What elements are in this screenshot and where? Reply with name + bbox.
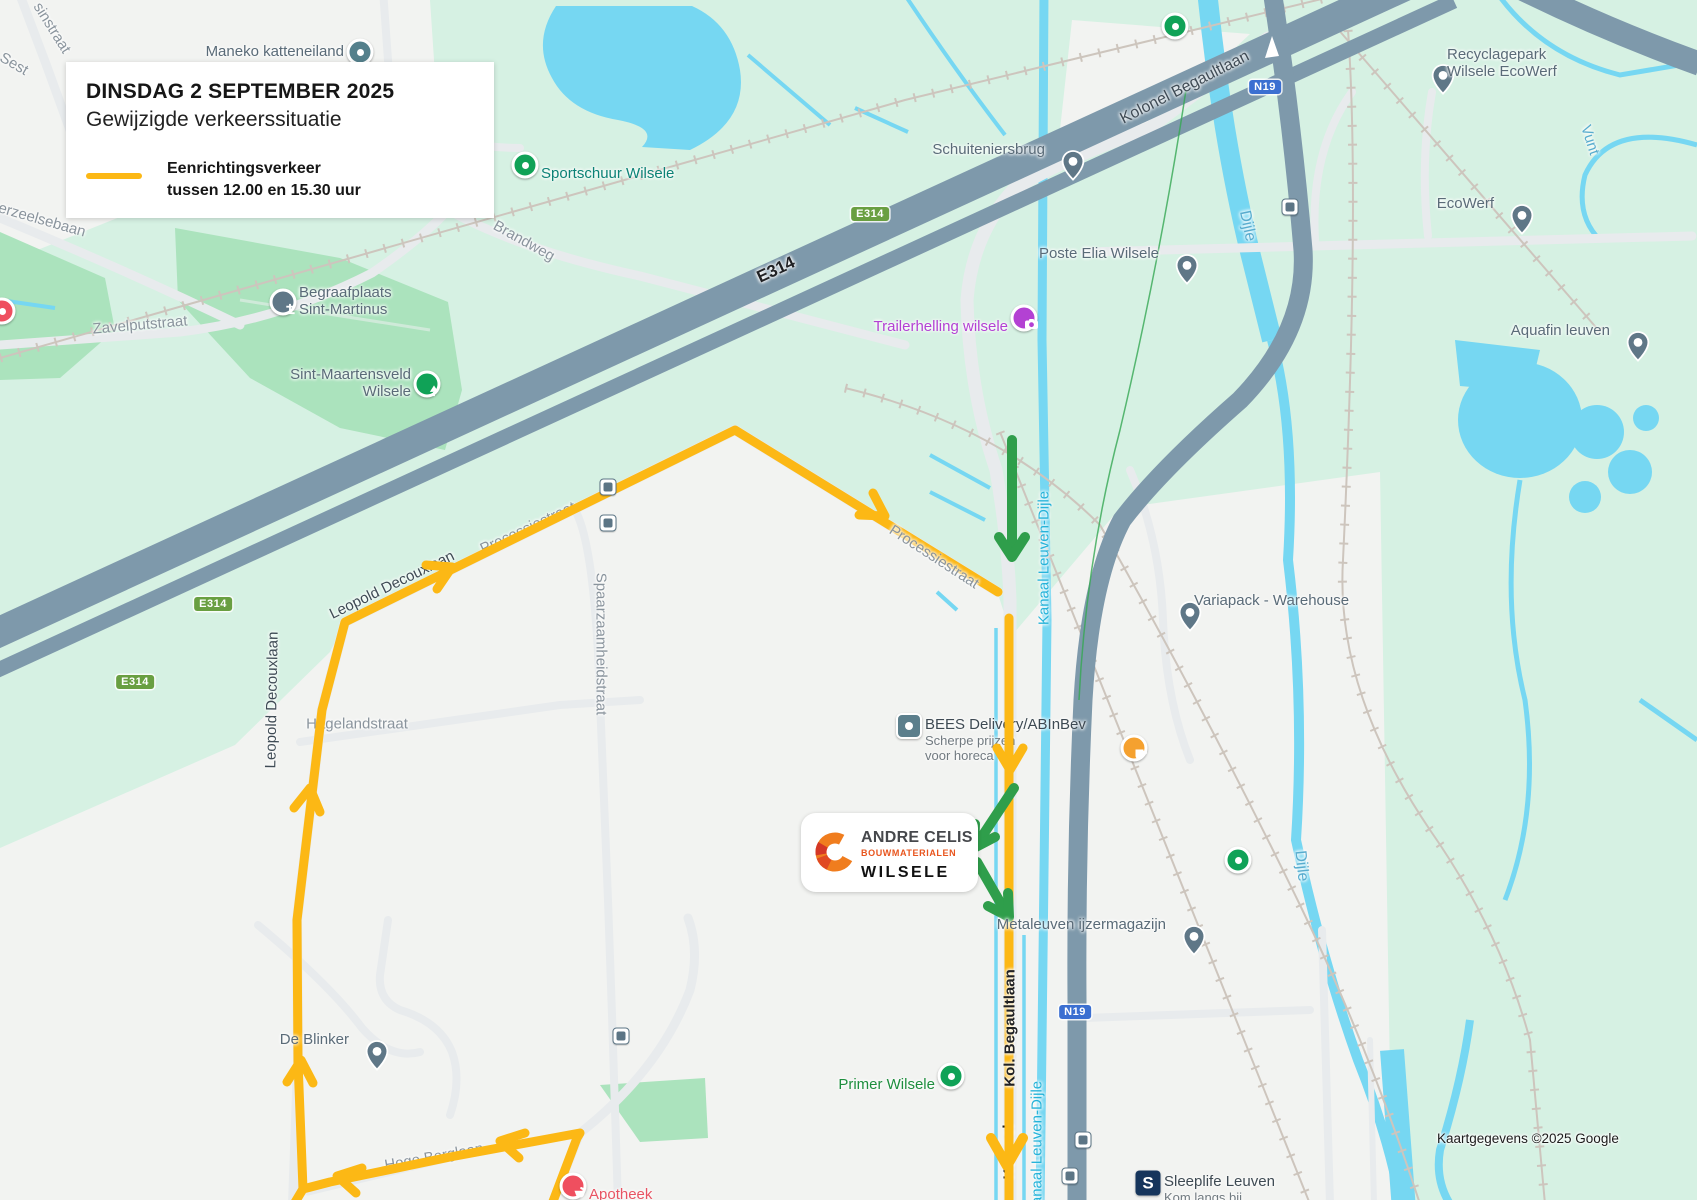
poi-label: Poste Elia Wilsele bbox=[1039, 245, 1159, 262]
poi-label: Primer Wilsele bbox=[838, 1076, 935, 1093]
poi-label: EcoWerf bbox=[1437, 195, 1494, 212]
map-canvas[interactable]: sinstraatSesterzeelsebaanZavelputstraatB… bbox=[0, 0, 1697, 1200]
poi-label: Variapack - Warehouse bbox=[1194, 592, 1349, 609]
brand-name: ANDRE CELIS bbox=[861, 829, 973, 847]
coffee-cup-icon bbox=[1121, 735, 1148, 762]
cemetery-icon bbox=[270, 289, 297, 316]
traffic-info-box: DINSDAG 2 SEPTEMBER 2025 Gewijzigde verk… bbox=[66, 62, 494, 218]
poi-label: RecyclageparkWilsele EcoWerf bbox=[1447, 46, 1557, 80]
circle-marker-icon bbox=[938, 1063, 965, 1090]
poi-label: Metaleuven ijzermagazijn bbox=[997, 916, 1166, 933]
map-pin-icon bbox=[1626, 331, 1650, 362]
poi-label: Sint-MaartensveldWilsele bbox=[290, 366, 411, 400]
map-pin-icon bbox=[1061, 150, 1085, 181]
map-attribution: Kaartgegevens ©2025 Google bbox=[1437, 1131, 1619, 1146]
info-subtitle: Gewijzigde verkeerssituatie bbox=[86, 108, 342, 132]
poi-label: Sleeplife LeuvenKom langs bijSleeplife O bbox=[1164, 1173, 1275, 1200]
sleeplife-s-icon: S bbox=[1136, 1171, 1161, 1196]
map-pin-icon bbox=[1510, 204, 1534, 235]
poi-label: Sportschuur Wilsele bbox=[541, 165, 674, 182]
legend-label: Eenrichtingsverkeer tussen 12.00 en 15.3… bbox=[167, 158, 361, 202]
legend-line-swatch bbox=[86, 173, 142, 179]
circle-marker-icon bbox=[1162, 13, 1189, 40]
map-pin-icon bbox=[1175, 254, 1199, 285]
camera-icon bbox=[1011, 305, 1038, 332]
poi-label: BegraafplaatsSint-Martinus bbox=[299, 284, 392, 318]
info-date: DINSDAG 2 SEPTEMBER 2025 bbox=[86, 80, 394, 104]
andre-celis-brand-box: ANDRE CELIS BOUWMATERIALEN WILSELE bbox=[801, 813, 978, 892]
poi-label: Maneko katteneiland bbox=[206, 43, 344, 60]
poi-label: Aquafin leuven bbox=[1511, 322, 1610, 339]
pharmacy-icon bbox=[560, 1173, 587, 1200]
map-pin-icon bbox=[1182, 925, 1206, 956]
tree-icon bbox=[414, 371, 441, 398]
circle-marker-icon bbox=[512, 152, 539, 179]
poi-label: Schuiteniersbrug bbox=[932, 141, 1045, 158]
brand-location: WILSELE bbox=[861, 864, 950, 882]
brand-subtitle: BOUWMATERIALEN bbox=[861, 848, 956, 858]
poi-label: ApotheekPharmanema Leuven bbox=[589, 1186, 732, 1200]
poi-label: Trailerhelling wilsele bbox=[874, 318, 1009, 335]
circle-marker-icon bbox=[0, 298, 16, 325]
circle-marker-icon bbox=[1225, 847, 1252, 874]
map-pin-icon bbox=[365, 1040, 389, 1071]
poi-label: De Blinker bbox=[280, 1031, 349, 1048]
